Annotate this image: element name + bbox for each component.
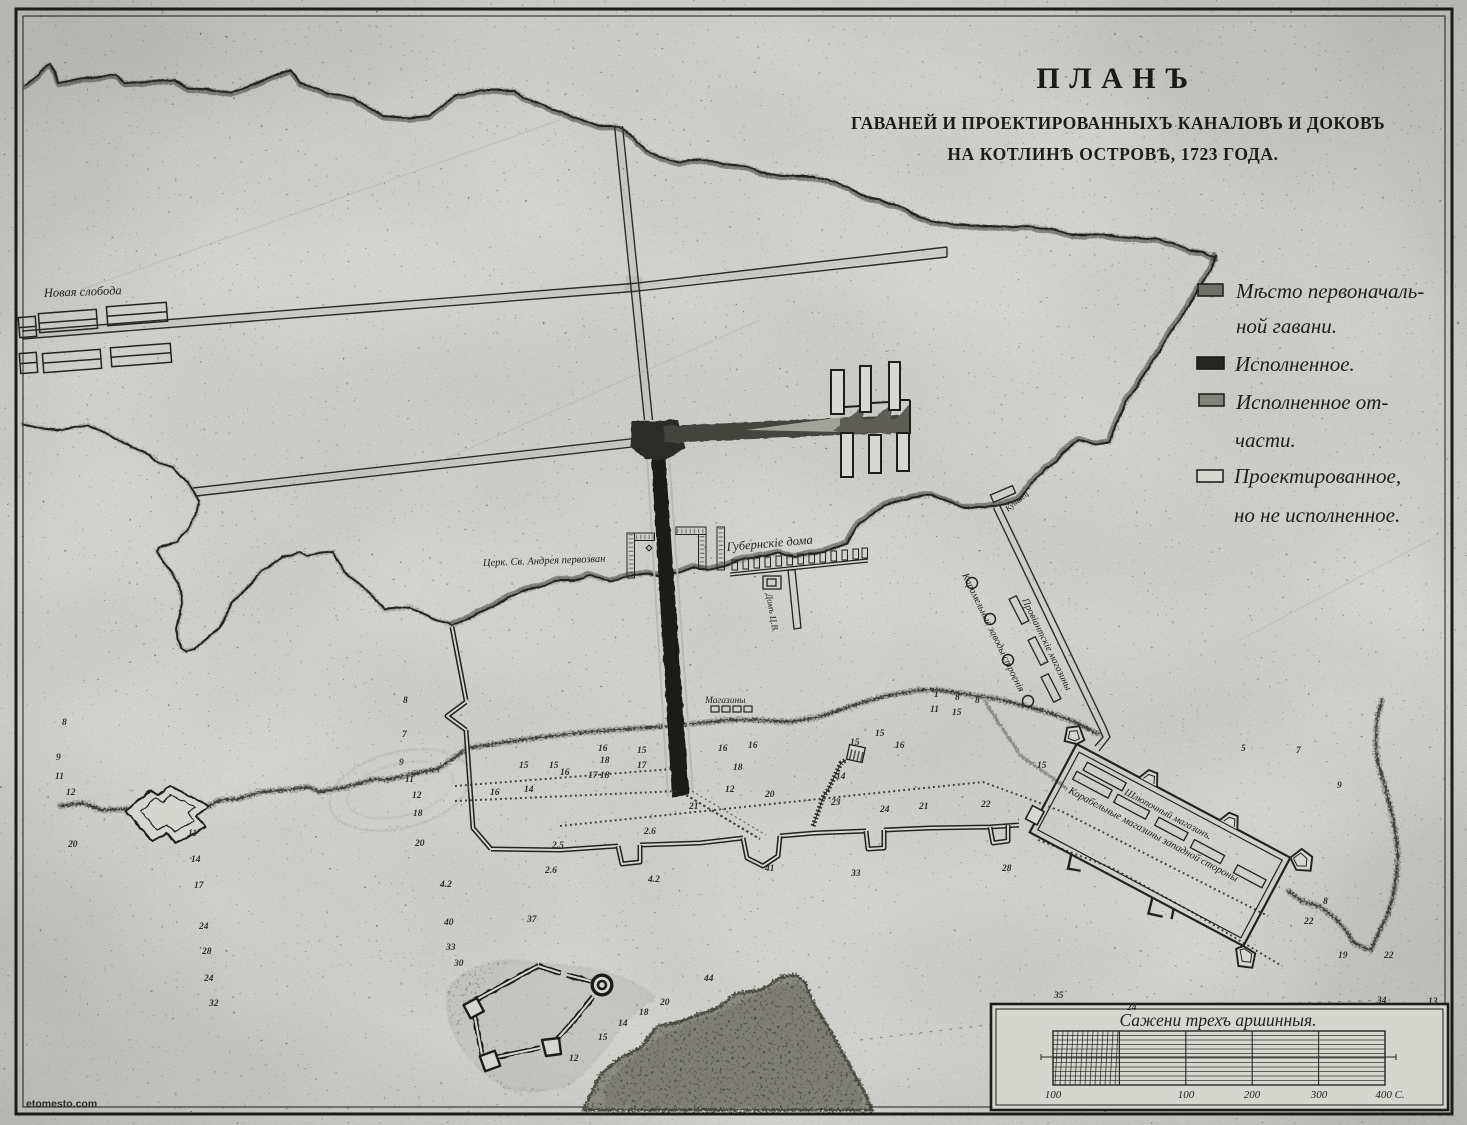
svg-text:части.: части. xyxy=(1235,428,1296,452)
svg-text:Магазины: Магазины xyxy=(704,696,746,706)
svg-text:20: 20 xyxy=(764,790,775,800)
svg-text:17: 17 xyxy=(637,761,648,771)
svg-text:Новая слобода: Новая слобода xyxy=(43,283,122,300)
svg-text:8: 8 xyxy=(975,696,980,706)
svg-text:17·18: 17·18 xyxy=(588,771,610,781)
svg-text:14: 14 xyxy=(618,1019,628,1029)
svg-text:15: 15 xyxy=(1037,761,1047,771)
svg-text:16: 16 xyxy=(598,744,608,754)
svg-text:24: 24 xyxy=(1126,1003,1137,1013)
svg-text:28: 28 xyxy=(201,947,212,957)
svg-text:9: 9 xyxy=(1337,781,1342,791)
svg-text:11: 11 xyxy=(930,705,939,715)
svg-text:16: 16 xyxy=(718,744,728,754)
svg-text:34: 34 xyxy=(1376,996,1387,1006)
svg-text:Проектированное,: Проектированное, xyxy=(1233,464,1401,488)
svg-text:100: 100 xyxy=(1178,1089,1195,1101)
svg-text:9: 9 xyxy=(56,753,61,763)
svg-text:15: 15 xyxy=(952,708,962,718)
svg-text:28: 28 xyxy=(1001,864,1012,874)
svg-text:15: 15 xyxy=(875,729,885,739)
svg-text:15: 15 xyxy=(637,746,647,756)
svg-text:16: 16 xyxy=(490,788,500,798)
svg-text:21: 21 xyxy=(688,802,699,812)
svg-text:19: 19 xyxy=(1338,951,1348,961)
svg-text:8: 8 xyxy=(403,696,408,706)
svg-text:Исполненное от-: Исполненное от- xyxy=(1235,390,1388,414)
svg-text:11: 11 xyxy=(55,772,64,782)
svg-text:30: 30 xyxy=(453,959,464,969)
svg-text:20: 20 xyxy=(67,840,78,850)
svg-text:8: 8 xyxy=(1323,897,1328,907)
svg-text:22: 22 xyxy=(1383,951,1394,961)
svg-text:41: 41 xyxy=(764,864,775,874)
svg-text:14: 14 xyxy=(836,772,846,782)
svg-text:12: 12 xyxy=(725,785,735,795)
svg-text:18: 18 xyxy=(600,756,610,766)
svg-text:Исполненное.: Исполненное. xyxy=(1234,352,1355,376)
svg-text:44: 44 xyxy=(703,974,714,984)
svg-text:15: 15 xyxy=(850,738,860,748)
svg-text:14: 14 xyxy=(191,855,201,865)
svg-text:etomesto.com: etomesto.com xyxy=(26,1098,97,1110)
svg-text:12: 12 xyxy=(569,1054,579,1064)
svg-text:4.2: 4.2 xyxy=(439,880,452,890)
svg-text:5: 5 xyxy=(1241,744,1246,754)
svg-text:НА КОТЛИНѢ ОСТРОВѢ, 1723 ГОДА.: НА КОТЛИНѢ ОСТРОВѢ, 1723 ГОДА. xyxy=(947,144,1278,164)
svg-text:8: 8 xyxy=(62,718,67,728)
svg-text:11: 11 xyxy=(405,775,414,785)
svg-text:18: 18 xyxy=(733,763,743,773)
svg-text:14: 14 xyxy=(524,785,534,795)
svg-text:100: 100 xyxy=(1045,1089,1062,1101)
svg-text:12: 12 xyxy=(66,788,76,798)
svg-text:8: 8 xyxy=(955,693,960,703)
svg-text:16: 16 xyxy=(748,741,758,751)
svg-text:20: 20 xyxy=(414,839,425,849)
svg-text:ПЛАНЪ: ПЛАНЪ xyxy=(1036,62,1197,95)
svg-text:Мѣсто первоначаль-: Мѣсто первоначаль- xyxy=(1235,279,1424,303)
svg-text:37: 37 xyxy=(526,915,538,925)
svg-text:24: 24 xyxy=(879,805,890,815)
svg-text:21: 21 xyxy=(918,802,929,812)
svg-text:но не исполненное.: но не исполненное. xyxy=(1234,503,1400,527)
svg-text:15: 15 xyxy=(549,761,559,771)
svg-text:33: 33 xyxy=(850,869,861,879)
svg-text:4.2: 4.2 xyxy=(647,875,660,885)
svg-text:40: 40 xyxy=(443,918,454,928)
svg-text:13: 13 xyxy=(1428,997,1438,1007)
svg-text:24: 24 xyxy=(198,922,209,932)
svg-text:Сажени трехъ аршинныя.: Сажени трехъ аршинныя. xyxy=(1119,1010,1316,1030)
svg-text:16: 16 xyxy=(560,768,570,778)
svg-text:300: 300 xyxy=(1310,1089,1328,1101)
svg-text:1: 1 xyxy=(934,690,939,700)
svg-text:400 С.: 400 С. xyxy=(1375,1089,1404,1101)
svg-text:33: 33 xyxy=(445,943,456,953)
svg-text:12: 12 xyxy=(412,791,422,801)
svg-text:15: 15 xyxy=(598,1033,608,1043)
svg-text:17: 17 xyxy=(194,881,205,891)
svg-text:200: 200 xyxy=(1244,1089,1261,1101)
svg-text:2.5: 2.5 xyxy=(551,841,564,851)
svg-text:2.6: 2.6 xyxy=(643,827,656,837)
svg-text:22: 22 xyxy=(1303,917,1314,927)
svg-text:ГАВАНЕЙ И ПРОЕКТИРОВАННЫХЪ КАН: ГАВАНЕЙ И ПРОЕКТИРОВАННЫХЪ КАНАЛОВЪ И ДО… xyxy=(851,113,1385,133)
svg-text:18: 18 xyxy=(639,1008,649,1018)
svg-text:11: 11 xyxy=(188,829,197,839)
svg-text:35: 35 xyxy=(1053,991,1064,1001)
svg-text:23: 23 xyxy=(830,798,841,808)
svg-text:2.6: 2.6 xyxy=(544,866,557,876)
svg-text:24: 24 xyxy=(203,974,214,984)
svg-text:ной гавани.: ной гавани. xyxy=(1236,314,1337,338)
svg-text:20: 20 xyxy=(659,998,670,1008)
svg-text:22: 22 xyxy=(980,800,991,810)
svg-text:32: 32 xyxy=(208,999,219,1009)
svg-text:15: 15 xyxy=(519,761,529,771)
svg-text:16: 16 xyxy=(895,741,905,751)
